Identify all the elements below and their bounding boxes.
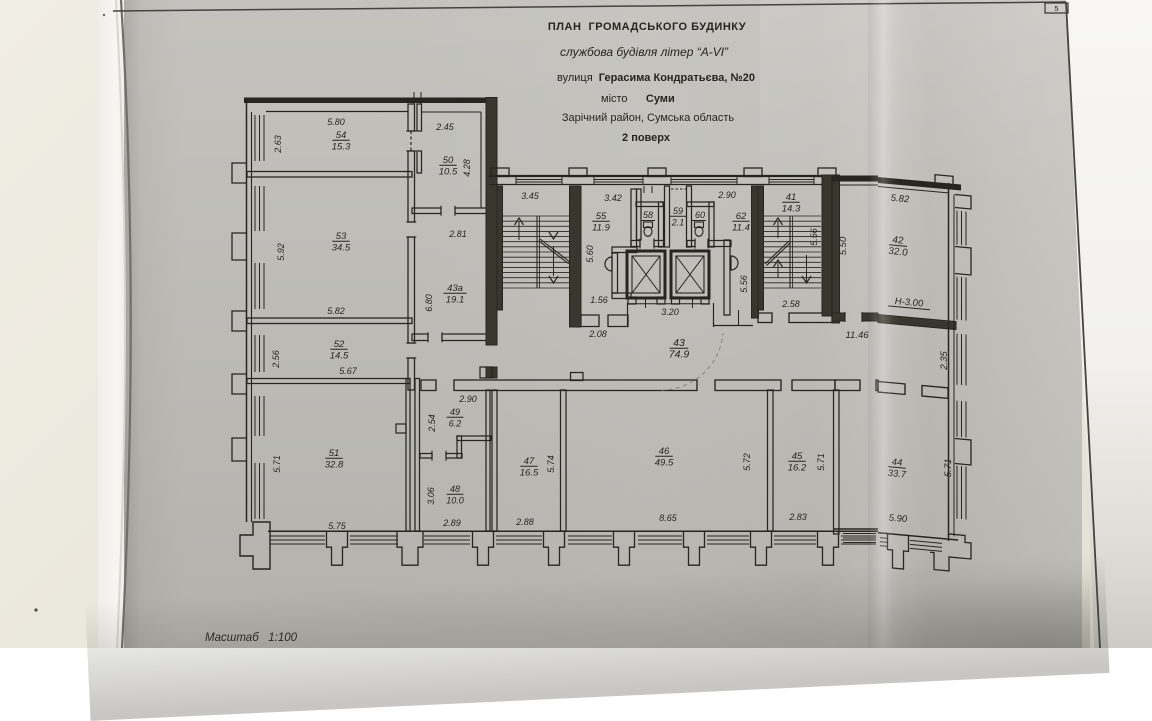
svg-text:62: 62	[736, 211, 747, 222]
svg-text:5.80: 5.80	[327, 117, 345, 127]
svg-text:52: 52	[334, 339, 345, 350]
svg-text:5.60: 5.60	[585, 245, 595, 263]
svg-text:19.1: 19.1	[446, 295, 465, 306]
svg-text:43: 43	[673, 337, 685, 349]
svg-text:3.06: 3.06	[426, 487, 436, 505]
svg-text:3.20: 3.20	[661, 307, 679, 317]
svg-text:14.3: 14.3	[782, 204, 801, 215]
svg-text:55: 55	[596, 211, 607, 222]
svg-text:16.5: 16.5	[520, 468, 539, 479]
svg-text:5.72: 5.72	[742, 453, 752, 471]
svg-text:45: 45	[792, 451, 803, 462]
svg-text:2 поверх: 2 поверх	[622, 132, 671, 144]
svg-text:49: 49	[450, 407, 460, 417]
svg-text:5.74: 5.74	[546, 455, 556, 473]
svg-text:5: 5	[1054, 4, 1058, 13]
svg-text:74.9: 74.9	[669, 349, 690, 361]
svg-text:51: 51	[329, 448, 340, 459]
svg-text:5.56: 5.56	[809, 228, 819, 246]
svg-text:11.4: 11.4	[732, 223, 750, 234]
svg-text:32.8: 32.8	[325, 460, 344, 471]
svg-text:2.89: 2.89	[442, 518, 461, 528]
svg-text:5.92: 5.92	[276, 243, 286, 261]
svg-text:34.5: 34.5	[332, 243, 351, 254]
svg-text:2.58: 2.58	[781, 299, 800, 309]
svg-text:5.50: 5.50	[838, 236, 849, 255]
svg-text:16.2: 16.2	[788, 463, 807, 474]
svg-text:3.45: 3.45	[521, 191, 540, 201]
svg-text:5.71: 5.71	[272, 455, 282, 473]
svg-text:48: 48	[450, 484, 460, 494]
svg-text:службова будівля літер “А-VI”: службова будівля літер “А-VI”	[560, 45, 729, 59]
svg-text:5.71: 5.71	[943, 458, 954, 477]
svg-text:43а: 43а	[447, 283, 463, 294]
svg-text:54: 54	[336, 130, 347, 141]
svg-text:11.46: 11.46	[845, 330, 869, 341]
svg-text:2.1: 2.1	[671, 218, 685, 228]
svg-text:3.42: 3.42	[604, 193, 622, 203]
svg-text:2.90: 2.90	[717, 190, 736, 200]
svg-text:5.75: 5.75	[328, 521, 347, 531]
svg-text:2.81: 2.81	[448, 229, 467, 239]
svg-text:2.54: 2.54	[427, 414, 437, 433]
svg-text:6.80: 6.80	[424, 294, 434, 312]
svg-text:2.90: 2.90	[458, 394, 477, 404]
svg-text:11.9: 11.9	[592, 223, 611, 234]
svg-text:10.5: 10.5	[439, 167, 458, 178]
svg-text:60: 60	[695, 210, 705, 220]
svg-text:53: 53	[336, 231, 347, 242]
svg-text:5.67: 5.67	[339, 366, 358, 376]
svg-text:Зарічний район, Сумська област: Зарічний район, Сумська область	[562, 112, 734, 124]
svg-text:5.56: 5.56	[739, 275, 749, 293]
svg-text:2.45: 2.45	[435, 122, 455, 132]
svg-text:50: 50	[443, 155, 454, 166]
svg-text:5.71: 5.71	[816, 453, 826, 471]
svg-text:59: 59	[673, 206, 683, 216]
svg-text:4.28: 4.28	[462, 159, 472, 177]
svg-text:2.56: 2.56	[271, 350, 281, 369]
svg-text:10.0: 10.0	[446, 496, 464, 506]
svg-text:вулиця Герасима Кондратьєва,: вулиця Герасима Кондратьєва, №20	[557, 72, 755, 84]
svg-text:46: 46	[659, 446, 670, 457]
svg-text:ПЛАН ГРОМАДСЬКОГО БУДИНКУ: ПЛАН ГРОМАДСЬКОГО БУДИНКУ	[548, 21, 746, 33]
svg-text:2.63: 2.63	[273, 135, 283, 154]
svg-text:5.82: 5.82	[327, 306, 345, 316]
svg-text:2.88: 2.88	[515, 517, 534, 527]
svg-text:49.5: 49.5	[655, 458, 674, 469]
svg-text:8.65: 8.65	[659, 513, 678, 523]
svg-text:2.83: 2.83	[788, 512, 807, 522]
svg-text:2.35: 2.35	[939, 350, 950, 371]
svg-text:58: 58	[643, 210, 653, 220]
svg-text:2.08: 2.08	[588, 329, 607, 339]
svg-text:місто Суми: місто Суми	[601, 93, 675, 105]
svg-text:6.2: 6.2	[449, 419, 462, 429]
svg-text:41: 41	[786, 192, 797, 203]
svg-text:14.5: 14.5	[330, 351, 349, 362]
svg-text:47: 47	[524, 456, 535, 467]
svg-text:15.3: 15.3	[332, 142, 351, 153]
svg-text:1.56: 1.56	[590, 295, 608, 305]
